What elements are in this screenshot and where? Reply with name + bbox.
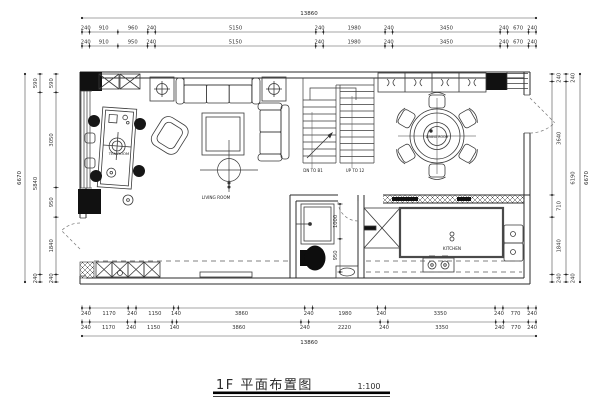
svg-text:1150: 1150 (148, 311, 161, 317)
kitchen-label: KITCHEN (443, 246, 461, 251)
svg-text:5150: 5150 (229, 26, 242, 32)
svg-text:3350: 3350 (435, 325, 448, 331)
dim-total-bottom: 13860 (300, 340, 318, 346)
kitchen-sink (504, 225, 523, 261)
svg-text:240: 240 (127, 311, 137, 317)
svg-text:240: 240 (527, 26, 537, 32)
svg-text:240: 240 (499, 26, 509, 32)
dining-chair (458, 143, 480, 165)
toilet (300, 246, 326, 271)
svg-text:240: 240 (49, 273, 55, 283)
svg-text:1170: 1170 (102, 325, 115, 331)
svg-text:1980: 1980 (338, 311, 351, 317)
svg-text:240: 240 (314, 40, 324, 46)
loveseat (258, 103, 289, 161)
shaft-box (364, 208, 400, 248)
svg-text:2220: 2220 (338, 325, 351, 331)
stair-down-label: DN TO B1 (303, 168, 323, 173)
masonry-pier (80, 262, 94, 278)
entry-door-left (62, 223, 80, 249)
living-room-label: LIVING ROOM (202, 195, 231, 200)
svg-text:240: 240 (81, 311, 91, 317)
svg-text:1840: 1840 (49, 239, 55, 252)
svg-text:910: 910 (99, 40, 109, 46)
svg-text:240: 240 (527, 40, 537, 46)
svg-text:140: 140 (169, 325, 179, 331)
svg-text:3350: 3350 (434, 311, 447, 317)
svg-text:240: 240 (81, 40, 91, 46)
svg-text:950: 950 (128, 40, 138, 46)
svg-text:3450: 3450 (440, 26, 453, 32)
coffee-table (202, 113, 244, 155)
svg-text:1840: 1840 (557, 239, 563, 252)
svg-text:240: 240 (147, 26, 157, 32)
svg-text:240: 240 (495, 325, 505, 331)
floor-strip (200, 272, 252, 277)
svg-text:910: 910 (99, 26, 109, 32)
dining-room-label: DINING ROOM (426, 135, 449, 139)
svg-text:240: 240 (527, 325, 537, 331)
window-top-right (507, 72, 528, 90)
end-table-right (262, 77, 286, 101)
dimension-annotations: 2409109602405150240198024034502406702402… (33, 26, 577, 331)
dim-total-top: 13860 (300, 11, 318, 17)
entry-door-right (530, 98, 555, 133)
svg-text:590: 590 (49, 78, 55, 88)
svg-text:240: 240 (494, 311, 504, 317)
svg-text:960: 960 (128, 26, 138, 32)
dim-total-right: 6670 (584, 171, 590, 185)
svg-text:6190: 6190 (571, 171, 577, 184)
shower (296, 204, 334, 244)
dimension-totals: 13860 13860 6670 6670 (17, 11, 590, 346)
svg-text:3050: 3050 (49, 133, 55, 146)
title-block: 1F 平面布置图 1:100 (213, 378, 390, 397)
plant (133, 165, 145, 177)
sheet-title: 1F 平面布置图 (216, 378, 313, 393)
svg-text:240: 240 (376, 311, 386, 317)
svg-text:3450: 3450 (440, 40, 453, 46)
svg-text:240: 240 (571, 73, 577, 83)
svg-text:240: 240 (379, 325, 389, 331)
svg-text:950: 950 (49, 197, 55, 207)
svg-text:5150: 5150 (229, 40, 242, 46)
svg-text:240: 240 (499, 40, 509, 46)
svg-text:670: 670 (513, 40, 523, 46)
svg-text:1150: 1150 (147, 325, 160, 331)
svg-text:5840: 5840 (33, 177, 39, 190)
kitchen-counter-dashed (366, 261, 522, 272)
svg-text:3860: 3860 (235, 311, 248, 317)
svg-text:240: 240 (315, 26, 325, 32)
svg-text:240: 240 (384, 26, 394, 32)
svg-text:240: 240 (557, 73, 563, 83)
svg-text:1170: 1170 (102, 311, 115, 317)
svg-text:240: 240 (384, 40, 394, 46)
svg-text:140: 140 (171, 311, 181, 317)
plant (134, 118, 146, 130)
svg-text:1980: 1980 (347, 40, 360, 46)
wardrobe-cabinets (378, 73, 486, 92)
stair-up-label: UP TO 12 (346, 168, 365, 173)
tea-table (97, 107, 136, 189)
ceiling-light (200, 140, 258, 192)
staircase: DN TO B1 UP TO 12 (303, 78, 374, 173)
kitchen-wall-hatched (383, 195, 530, 203)
accent-chair (148, 113, 191, 157)
plant (88, 115, 100, 127)
svg-text:770: 770 (511, 325, 521, 331)
shoe-cabinets (96, 262, 160, 277)
dining-chair (395, 107, 417, 129)
svg-text:3860: 3860 (232, 325, 245, 331)
svg-text:590: 590 (33, 78, 39, 88)
svg-text:710: 710 (557, 201, 563, 211)
sofa (176, 78, 260, 104)
svg-text:1000: 1000 (333, 215, 339, 228)
svg-text:240: 240 (126, 325, 136, 331)
svg-text:240: 240 (304, 311, 314, 317)
plant (90, 170, 102, 182)
svg-text:240: 240 (300, 325, 310, 331)
svg-text:240: 240 (557, 273, 563, 283)
window-left (80, 91, 92, 188)
end-table-left (150, 77, 174, 101)
column (486, 73, 507, 90)
svg-text:240: 240 (527, 311, 537, 317)
svg-text:670: 670 (513, 26, 523, 32)
svg-text:240: 240 (146, 40, 156, 46)
tea-room-label: TEA ROOM (108, 151, 129, 156)
floor-plan-drawing: LIVING ROOM TEA ROOM (0, 0, 600, 407)
svg-text:770: 770 (511, 311, 521, 317)
wall-cabinets-top-left (99, 74, 140, 89)
svg-text:3640: 3640 (557, 132, 563, 145)
svg-text:240: 240 (33, 273, 39, 283)
dining-chair (395, 143, 417, 165)
drawing-sheet: LIVING ROOM TEA ROOM (0, 0, 600, 407)
sheet-scale: 1:100 (357, 382, 380, 391)
dim-total-left: 6670 (17, 171, 23, 185)
svg-text:240: 240 (81, 325, 91, 331)
svg-text:1980: 1980 (348, 26, 361, 32)
svg-text:950: 950 (333, 250, 339, 260)
cooktop (423, 256, 454, 272)
svg-text:240: 240 (571, 273, 577, 283)
column (78, 189, 101, 214)
svg-text:240: 240 (81, 26, 91, 32)
dining-chair (458, 107, 480, 129)
